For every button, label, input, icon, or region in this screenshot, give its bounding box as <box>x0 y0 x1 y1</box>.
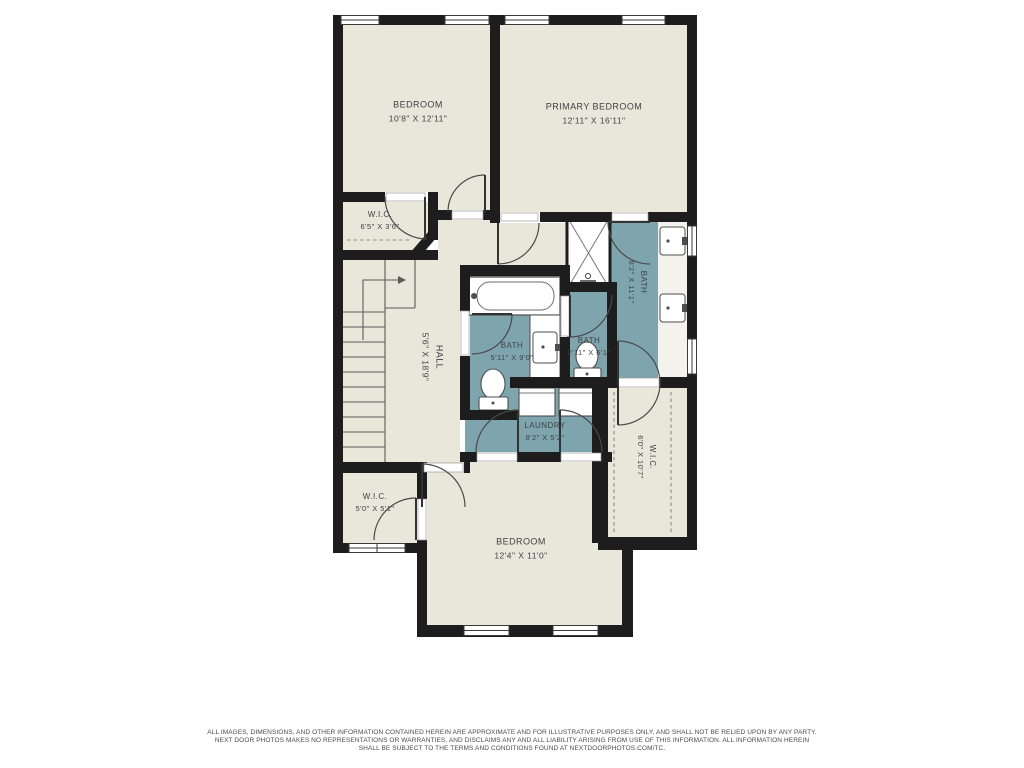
room-label-bedroom-top: BEDROOM 10'8" X 12'11" <box>389 98 447 125</box>
room-name: W.I.C. <box>646 435 658 479</box>
sink-faucet-icon <box>682 237 687 245</box>
room-dims: 2'11" X 6'1" <box>567 347 610 359</box>
window <box>341 16 379 25</box>
bathtub-faucet-icon <box>471 293 477 299</box>
room-dims: 8'2" X 11'1" <box>625 260 637 303</box>
window <box>349 544 405 553</box>
room-name: PRIMARY BEDROOM <box>546 100 642 114</box>
room-label-bath-primary: BATH 8'2" X 11'1" <box>625 260 649 303</box>
disclaimer-text: ALL IMAGES, DIMENSIONS, AND OTHER INFORM… <box>0 729 1024 752</box>
room-dims: 8'2" X 5'2" <box>524 432 565 444</box>
dryer <box>559 388 593 416</box>
window <box>688 226 697 256</box>
room-dims: 10'8" X 12'11" <box>389 112 447 125</box>
room-dims: 6'5" X 3'6" <box>361 221 400 233</box>
sink-bath-main <box>533 332 557 363</box>
room-dims: 5'0" X 5'1" <box>356 503 395 515</box>
room-name: BEDROOM <box>494 535 547 549</box>
room-name: W.I.C. <box>356 491 395 503</box>
window <box>464 626 509 636</box>
room-dims: 5'11" X 9'0" <box>490 352 533 364</box>
room-name: BATH <box>567 335 610 347</box>
room-dims: 5'6" X 18'9" <box>418 333 431 382</box>
room-label-laundry: LAUNDRY 8'2" X 5'2" <box>524 420 565 444</box>
room-name: BEDROOM <box>389 98 447 112</box>
room-label-wic-right: W.I.C. 6'0" X 10'7" <box>634 435 658 479</box>
shower <box>567 218 610 288</box>
window <box>505 16 549 25</box>
floor-plan-page: BEDROOM 10'8" X 12'11" PRIMARY BEDROOM 1… <box>0 0 1024 768</box>
room-dims: 12'4" X 11'0" <box>494 549 547 562</box>
room-name: LAUNDRY <box>524 420 565 432</box>
vanity-bath-main <box>530 315 560 378</box>
room-label-bath-small: BATH 2'11" X 6'1" <box>567 335 610 359</box>
room-name: W.I.C. <box>361 209 400 221</box>
washer <box>519 388 555 416</box>
floor-plan-drawing <box>0 0 1024 768</box>
room-dims: 12'11" X 16'11" <box>546 114 642 127</box>
disclaimer-line-1: ALL IMAGES, DIMENSIONS, AND OTHER INFORM… <box>0 729 1024 737</box>
window <box>688 339 697 374</box>
room-name: BATH <box>637 260 649 303</box>
sink-faucet-icon <box>682 304 687 312</box>
room-label-wic-top: W.I.C. 6'5" X 3'6" <box>361 209 400 233</box>
window <box>445 16 489 25</box>
room-label-wic-bottom-left: W.I.C. 5'0" X 5'1" <box>356 491 395 515</box>
floor-bedroom-top-door-bay <box>438 192 490 210</box>
sink-primary-2 <box>660 294 685 322</box>
room-label-bath-main: BATH 5'11" X 9'0" <box>490 340 533 364</box>
disclaimer-line-2: NEXT DOOR PHOTOS MAKES NO REPRESENTATION… <box>0 737 1024 745</box>
window <box>622 16 665 25</box>
room-label-bedroom-bottom: BEDROOM 12'4" X 11'0" <box>494 535 547 562</box>
room-label-primary-bedroom: PRIMARY BEDROOM 12'11" X 16'11" <box>546 100 642 127</box>
disclaimer-line-3: SHALL BE SUBJECT TO THE TERMS AND CONDIT… <box>0 745 1024 753</box>
sink-faucet-icon <box>555 344 560 351</box>
floor-laundry-ext <box>465 420 517 452</box>
window <box>553 626 598 636</box>
bathtub <box>469 277 560 315</box>
room-name: HALL <box>432 333 446 382</box>
sink-primary-1 <box>660 227 685 255</box>
room-name: BATH <box>490 340 533 352</box>
room-label-hall: HALL 5'6" X 18'9" <box>418 333 445 382</box>
floor-corridor <box>460 223 567 265</box>
room-dims: 6'0" X 10'7" <box>634 435 646 479</box>
